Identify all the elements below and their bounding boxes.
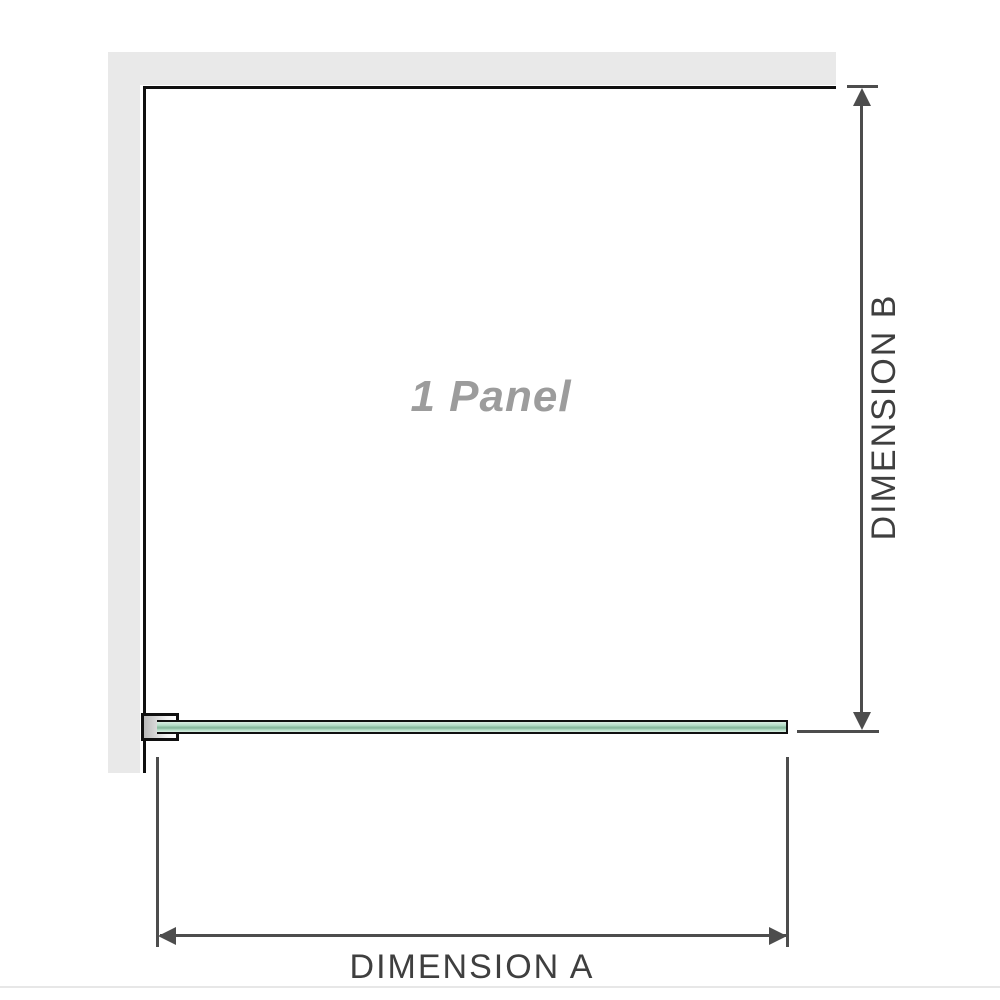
dimension-b-label: DIMENSION B [865, 217, 903, 617]
arrow-down-icon [853, 712, 871, 730]
dimension-a-line [160, 934, 787, 937]
panel-outline-left [143, 86, 146, 773]
arrow-up-icon [853, 88, 871, 106]
dimension-b-top-tick [847, 85, 878, 88]
dimension-a-extension-right [786, 757, 789, 947]
shower-panel-dimension-diagram: 1 Panel DIMENSION B DIMENSION A [0, 0, 1000, 1000]
wall-top [108, 52, 836, 85]
dimension-a-extension-left [156, 757, 159, 947]
dimension-b-bottom-tick [797, 730, 879, 733]
glass-panel [157, 720, 788, 734]
bottom-divider [0, 986, 1000, 988]
arrow-right-icon [769, 927, 787, 945]
dimension-b-line [860, 92, 863, 722]
wall-left [108, 52, 140, 773]
arrow-left-icon [158, 927, 176, 945]
dimension-a-label: DIMENSION A [157, 948, 787, 987]
panel-outline-top [143, 86, 836, 89]
panel-label: 1 Panel [146, 372, 836, 422]
